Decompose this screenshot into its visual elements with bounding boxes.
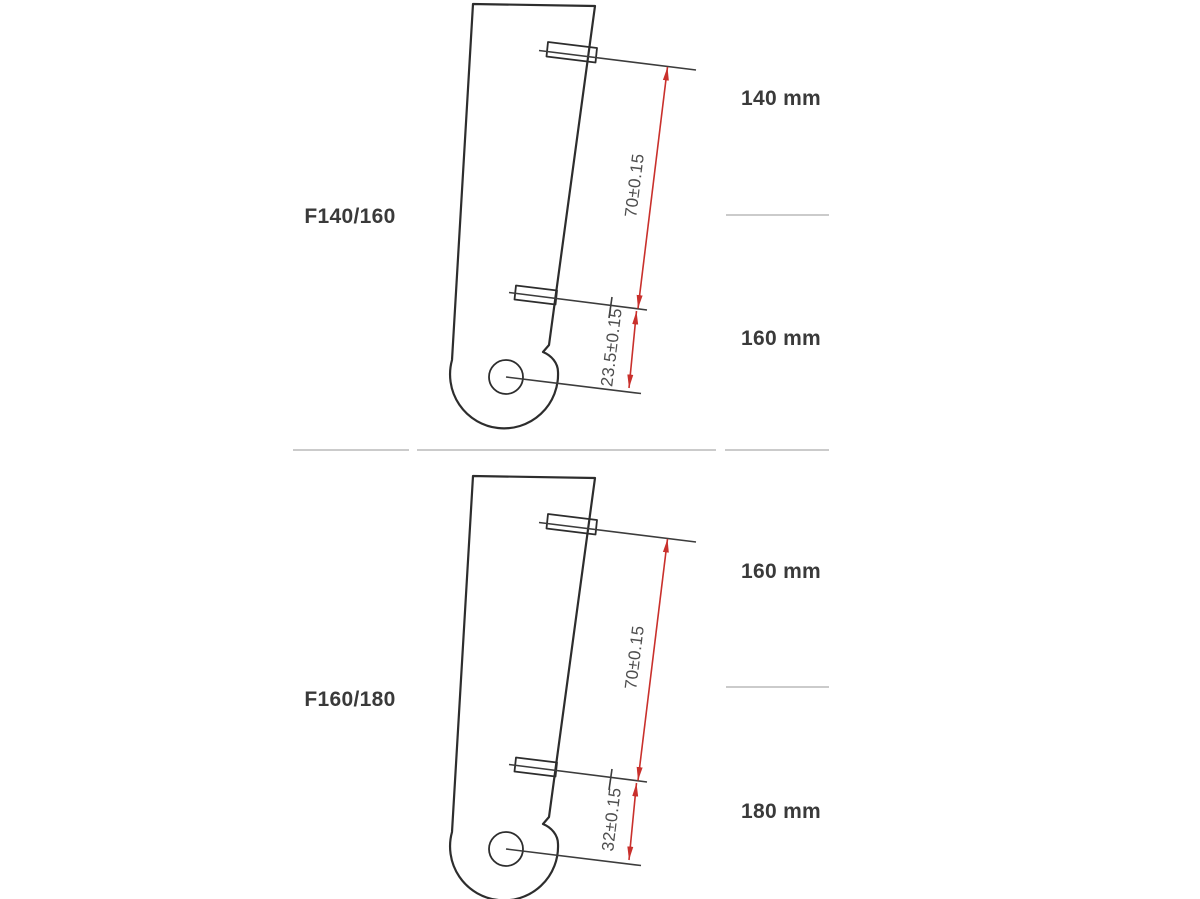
axle-center-extension-line xyxy=(506,849,641,866)
travel-option-top-label: 160 mm xyxy=(741,560,821,583)
travel-option-bottom-label: 160 mm xyxy=(741,327,821,350)
diagram-row-f140-160: 70±0.15 23.5±0.15 F140/160 140 mm 160 mm xyxy=(304,4,829,428)
dimension-text-mount-to-axle: 23.5±0.15 xyxy=(597,307,625,388)
dimension-text-post-mount-spacing: 70±0.15 xyxy=(621,624,648,690)
model-label: F160/180 xyxy=(304,688,395,711)
fork-leg-drawing xyxy=(450,4,597,428)
fork-dimension-diagram-page: 70±0.15 23.5±0.15 F140/160 140 mm 160 mm xyxy=(0,0,1200,899)
travel-option-bottom-label: 180 mm xyxy=(741,800,821,823)
fork-dimension-diagram: 70±0.15 23.5±0.15 F140/160 140 mm 160 mm xyxy=(0,0,1200,899)
dimension-line-mount-to-axle xyxy=(629,311,637,388)
upper-mount-extension-line xyxy=(539,523,696,543)
model-label: F140/160 xyxy=(304,205,395,228)
axle-center-extension-line xyxy=(506,377,641,394)
dimension-text-mount-to-axle: 32±0.15 xyxy=(598,786,625,852)
diagram-row-f160-180: 70±0.15 32±0.15 F160/180 160 mm 180 mm xyxy=(304,476,829,899)
dimension-text-post-mount-spacing: 70±0.15 xyxy=(621,152,648,218)
travel-option-top-label: 140 mm xyxy=(741,87,821,110)
upper-mount-extension-line xyxy=(539,51,696,71)
fork-leg-drawing xyxy=(450,476,597,899)
dimension-line-mount-to-axle xyxy=(629,783,637,860)
